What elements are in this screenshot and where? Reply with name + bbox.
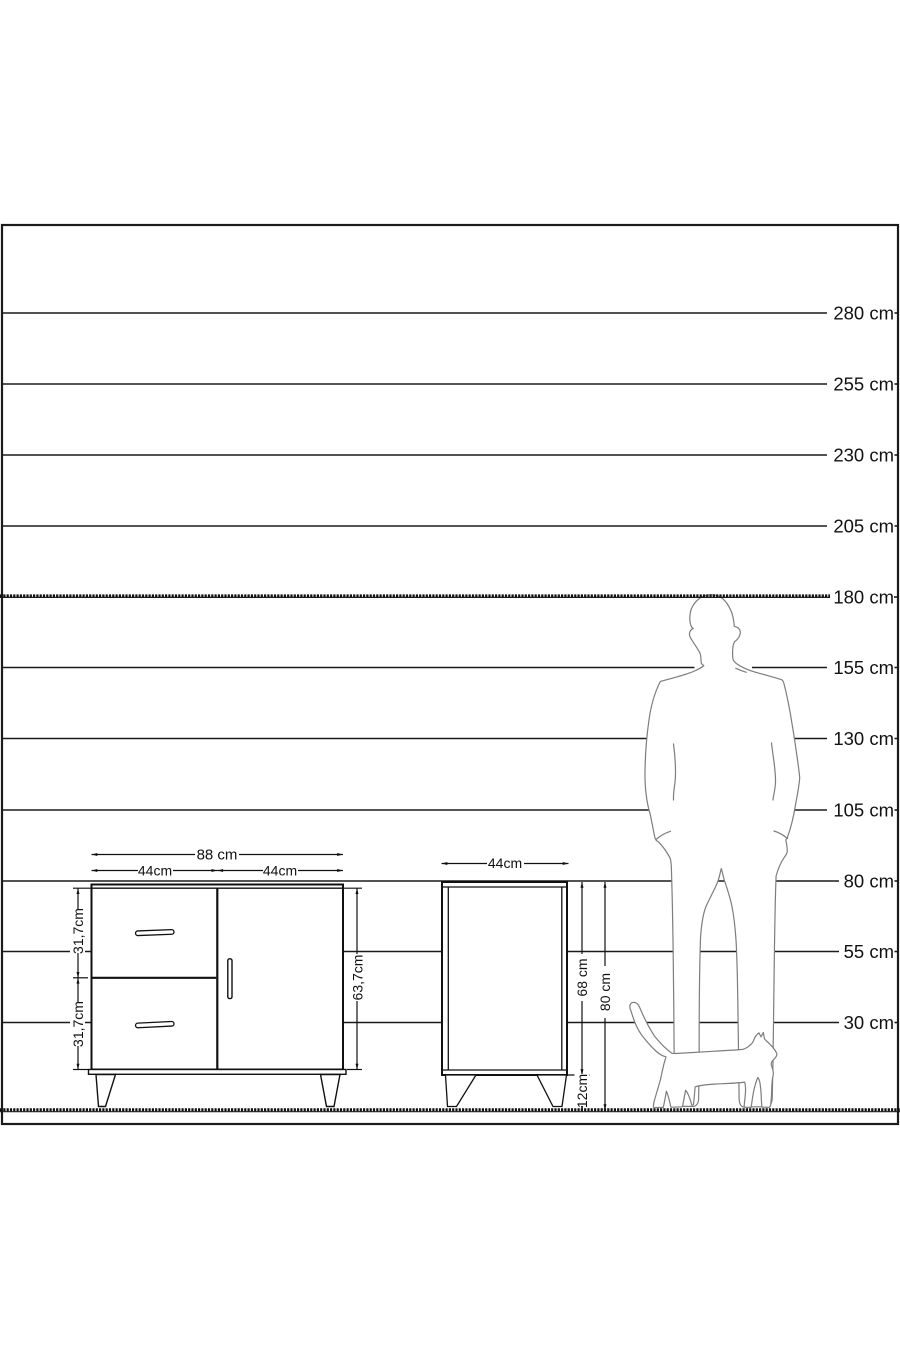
svg-text:105 cm: 105 cm	[833, 800, 894, 821]
svg-text:180 cm: 180 cm	[833, 587, 894, 608]
svg-text:130 cm: 130 cm	[833, 728, 894, 749]
svg-text:80 cm: 80 cm	[844, 871, 894, 892]
svg-text:12cm: 12cm	[574, 1074, 590, 1108]
svg-text:68 cm: 68 cm	[574, 958, 590, 996]
svg-text:31,7cm: 31,7cm	[70, 908, 86, 954]
svg-text:80 cm: 80 cm	[597, 973, 613, 1011]
svg-text:44cm: 44cm	[138, 863, 172, 879]
svg-text:63,7cm: 63,7cm	[350, 955, 366, 1001]
svg-text:30 cm: 30 cm	[844, 1012, 894, 1033]
svg-text:55 cm: 55 cm	[844, 941, 894, 962]
svg-text:44cm: 44cm	[488, 855, 522, 871]
svg-text:88 cm: 88 cm	[197, 847, 238, 864]
svg-text:155 cm: 155 cm	[833, 657, 894, 678]
svg-text:230 cm: 230 cm	[833, 445, 894, 466]
svg-text:31,7cm: 31,7cm	[70, 1001, 86, 1047]
svg-text:44cm: 44cm	[263, 863, 297, 879]
svg-text:255 cm: 255 cm	[833, 374, 894, 395]
svg-text:280 cm: 280 cm	[833, 303, 894, 324]
svg-text:205 cm: 205 cm	[833, 516, 894, 537]
